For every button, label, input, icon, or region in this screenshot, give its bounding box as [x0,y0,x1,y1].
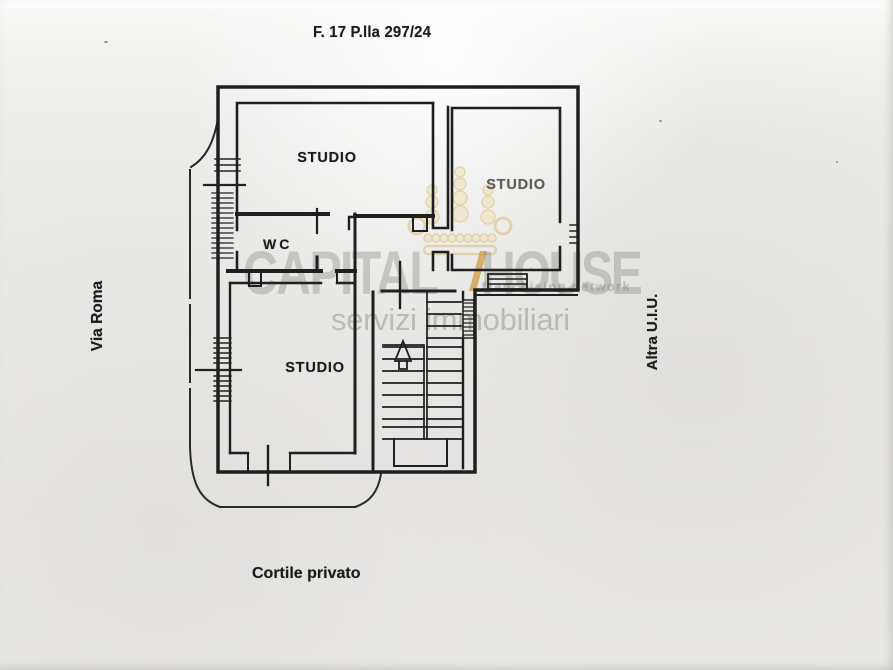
cadastral-title: F. 17 P.lla 297/24 [313,24,431,42]
stairs-up-arrow-icon [395,341,411,369]
room-label-studio-bottom-left: STUDIO [275,360,355,376]
floor-plan-drawing [0,0,893,670]
scanned-floorplan-page: CAPITAL HOUSE franchising network serviz… [0,0,893,670]
watermark-tagline: franchising network [482,280,631,294]
watermark-graphics [0,0,893,670]
adjacent-unit-label-altra-uiu: Altra U.I.U. [644,290,662,374]
building-walls [218,87,578,485]
scan-speckle [659,120,662,122]
room-label-wc: WC [263,236,292,252]
scan-speckle [836,161,838,163]
scan-speckle [104,41,108,43]
courtyard-label-cortile-privato: Cortile privato [252,565,360,583]
street-label-via-roma: Via Roma [89,268,107,364]
room-label-studio-top-right: STUDIO [476,177,556,193]
courtyard-boundary [190,118,381,507]
window-hatches [196,159,578,401]
stairs [383,292,461,466]
scan-speckle [530,268,532,270]
watermark-subtitle: servizi immobiliari [331,302,570,338]
room-label-studio-top-left: STUDIO [287,150,367,166]
watermark-brand-capital: CAPITAL [243,243,437,304]
slash-icon [469,251,487,291]
watermark-brand-house: HOUSE [481,243,641,304]
